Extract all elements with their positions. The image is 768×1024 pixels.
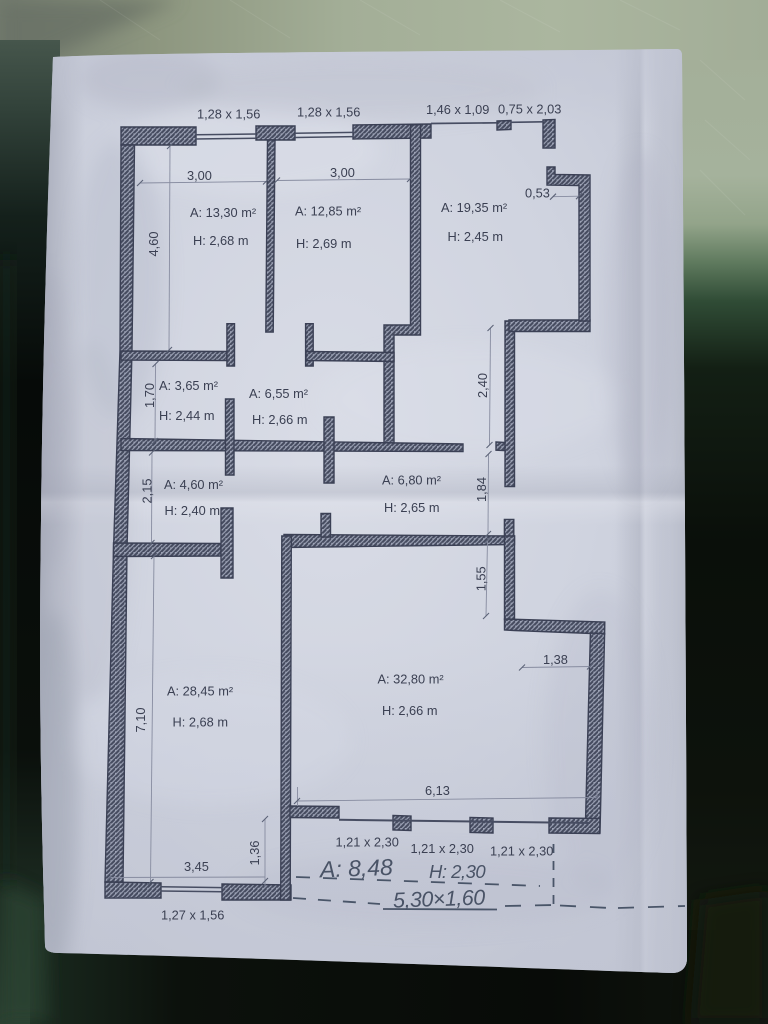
svg-text:3,00: 3,00 (330, 165, 355, 180)
svg-text:A: 3,65 m²: A: 3,65 m² (159, 378, 219, 393)
svg-text:5,30×1,60: 5,30×1,60 (393, 885, 486, 912)
svg-text:H: 2,30: H: 2,30 (429, 861, 486, 882)
svg-text:1,55: 1,55 (474, 566, 489, 591)
svg-text:H: 2,45 m: H: 2,45 m (448, 229, 503, 244)
svg-text:4,60: 4,60 (146, 232, 161, 257)
svg-text:H: 2,68 m: H: 2,68 m (173, 715, 228, 730)
svg-text:A: 6,55 m²: A: 6,55 m² (249, 386, 309, 401)
svg-text:H: 2,68 m: H: 2,68 m (193, 233, 248, 248)
svg-text:1,21 x 2,30: 1,21 x 2,30 (490, 844, 553, 859)
svg-text:H: 2,44 m: H: 2,44 m (159, 408, 214, 423)
svg-text:A: 8,48: A: 8,48 (318, 854, 394, 883)
svg-text:1,21 x 2,30: 1,21 x 2,30 (411, 841, 474, 856)
svg-text:H: 2,65 m: H: 2,65 m (384, 500, 439, 515)
svg-text:A: 19,35 m²: A: 19,35 m² (441, 200, 508, 215)
svg-text:7,10: 7,10 (133, 708, 148, 733)
svg-text:1,46 x 1,09: 1,46 x 1,09 (426, 102, 489, 117)
svg-text:1,28 x 1,56: 1,28 x 1,56 (297, 105, 360, 120)
svg-text:1,28 x 1,56: 1,28 x 1,56 (197, 107, 260, 122)
svg-text:0,75 x 2,03: 0,75 x 2,03 (498, 102, 561, 117)
svg-text:H: 2,66 m: H: 2,66 m (252, 412, 307, 427)
svg-text:1,70: 1,70 (142, 383, 157, 408)
svg-text:A: 28,45 m²: A: 28,45 m² (167, 684, 234, 699)
svg-text:2,40: 2,40 (475, 373, 490, 398)
svg-text:1,84: 1,84 (474, 477, 489, 502)
svg-text:H: 2,40 m: H: 2,40 m (165, 503, 220, 518)
svg-text:A: 12,85 m²: A: 12,85 m² (295, 204, 362, 219)
svg-text:H: 2,69 m: H: 2,69 m (296, 236, 351, 251)
svg-text:1,27 x 1,56: 1,27 x 1,56 (161, 908, 224, 923)
svg-text:1,36: 1,36 (247, 841, 262, 866)
svg-text:A: 32,80 m²: A: 32,80 m² (378, 672, 445, 687)
svg-text:A: 6,80 m²: A: 6,80 m² (382, 473, 442, 488)
svg-text:3,00: 3,00 (187, 168, 212, 183)
svg-text:6,13: 6,13 (425, 783, 450, 798)
svg-text:A: 13,30 m²: A: 13,30 m² (190, 205, 257, 220)
svg-text:A: 4,60 m²: A: 4,60 m² (164, 477, 224, 492)
svg-text:0,53: 0,53 (525, 186, 550, 201)
svg-text:1,38: 1,38 (543, 652, 568, 667)
svg-text:2,15: 2,15 (140, 479, 155, 504)
svg-text:H: 2,66 m: H: 2,66 m (382, 703, 437, 718)
svg-text:3,45: 3,45 (184, 859, 209, 874)
svg-text:1,21 x 2,30: 1,21 x 2,30 (336, 835, 399, 850)
